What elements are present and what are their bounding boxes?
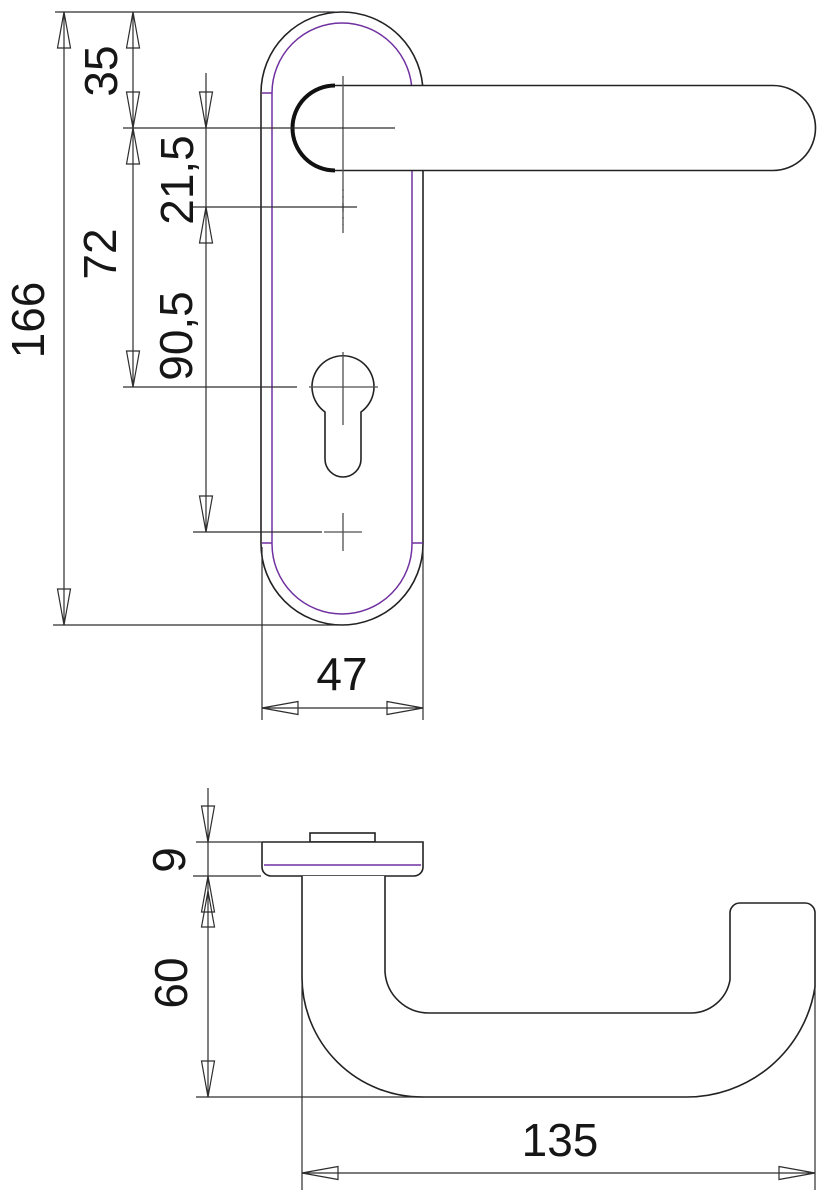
side-view-dimensions: 9 60 135: [143, 788, 815, 1190]
dim-overall-height: 166: [2, 282, 54, 359]
spindle-tab: [310, 833, 375, 842]
dim-hole-spacing: 90,5: [150, 291, 202, 381]
dim-projection: 60: [145, 957, 197, 1008]
backplate-section: [262, 842, 423, 876]
side-view: [262, 833, 815, 1097]
dim-handle-to-upper: 21,5: [151, 135, 203, 225]
front-view: [261, 12, 816, 625]
dim-plate-thickness: 9: [143, 847, 195, 873]
dim-handle-to-cylinder: 72: [74, 228, 126, 279]
door-handle-technical-drawing: 166 35 21,5 72 90,5 47 9 60: [0, 0, 833, 1200]
dim-top-to-handle: 35: [75, 45, 127, 96]
technical-drawing-page: 166 35 21,5 72 90,5 47 9 60: [0, 0, 833, 1200]
dim-plate-width: 47: [316, 648, 367, 700]
dim-length: 135: [522, 1114, 599, 1166]
handle-profile: [302, 876, 815, 1097]
